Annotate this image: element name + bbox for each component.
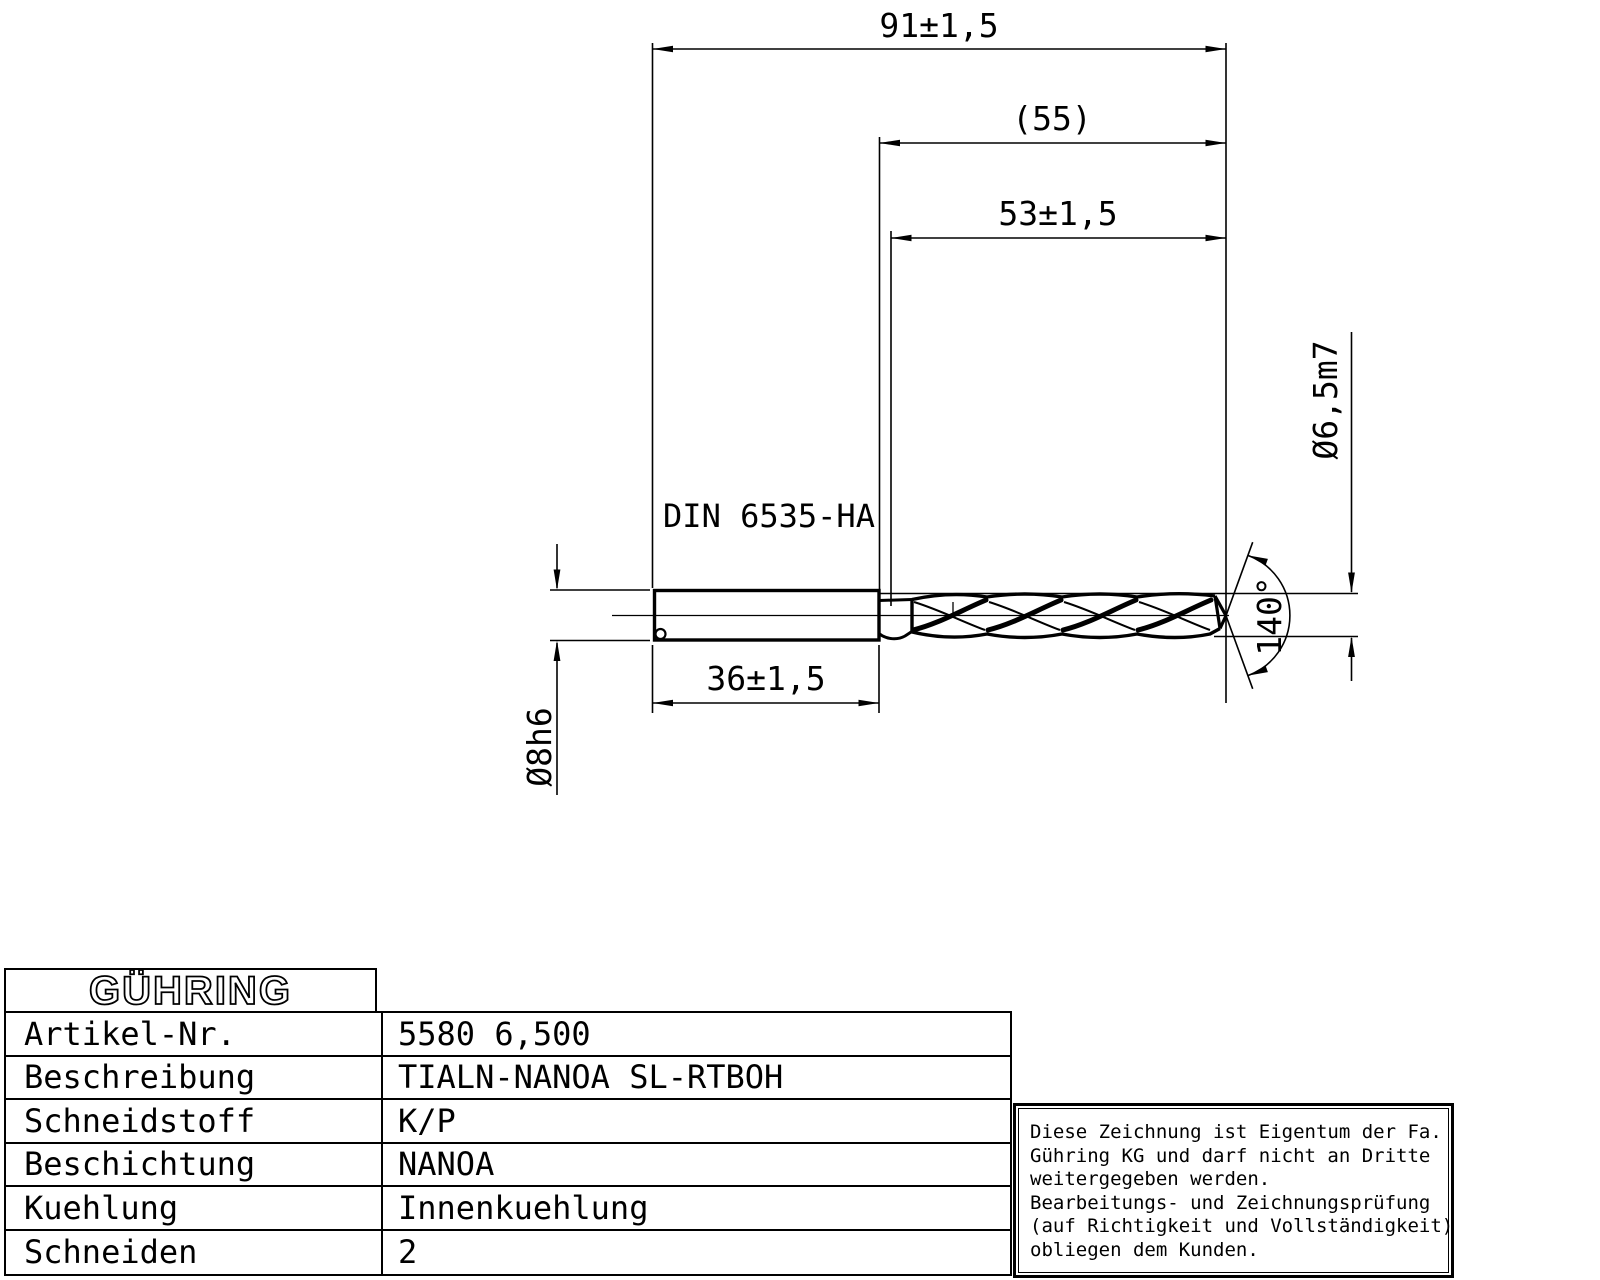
ownership-note: Diese Zeichnung ist Eigentum der Fa. Güh… — [1013, 1103, 1454, 1278]
note-line: obliegen dem Kunden. — [1030, 1239, 1448, 1263]
spec-table: Artikel-Nr. 5580 6,500 Beschreibung TIAL… — [4, 1011, 1012, 1276]
note-line: Bearbeitungs- und Zeichnungsprüfung — [1030, 1192, 1448, 1216]
spec-label-beschreibung: Beschreibung — [6, 1057, 383, 1101]
shank-din-label: DIN 6535-HA — [663, 497, 875, 535]
guehring-logo: GÜHRING — [89, 971, 292, 1011]
drill-tip — [1215, 596, 1226, 629]
dim-flute-length: 53±1,5 — [998, 194, 1117, 233]
angle-leg-top — [1226, 542, 1253, 616]
dim-drill-diameter: Ø6,5m7 — [1306, 340, 1345, 459]
logo-box: GÜHRING — [4, 968, 377, 1013]
flute-top-edge — [912, 594, 1215, 600]
dimension-arrows — [554, 46, 1355, 707]
spec-value-beschichtung: NANOA — [383, 1144, 1010, 1188]
ownership-note-inner: Diese Zeichnung ist Eigentum der Fa. Güh… — [1018, 1108, 1449, 1273]
angle-leg-bottom — [1226, 616, 1253, 689]
dim-point-angle: 140° — [1250, 576, 1289, 655]
spec-label-schneidstoff: Schneidstoff — [6, 1100, 383, 1144]
spec-label-artikel: Artikel-Nr. — [6, 1013, 383, 1057]
spec-label-beschichtung: Beschichtung — [6, 1144, 383, 1188]
spec-value-schneidstoff: K/P — [383, 1100, 1010, 1144]
dim-total-length: 91±1,5 — [879, 6, 998, 45]
note-line: Gühring KG und darf nicht an Dritte — [1030, 1145, 1448, 1169]
spec-label-schneiden: Schneiden — [6, 1231, 383, 1275]
spec-value-kuehlung: Innenkuehlung — [383, 1187, 1010, 1231]
note-line: (auf Richtigkeit und Vollständigkeit) — [1030, 1215, 1448, 1239]
drawing-sheet: 91±1,5 (55) 53±1,5 36±1,5 DIN 6535-HA Ø8… — [0, 0, 1600, 1280]
note-line: weitergegeben werden. — [1030, 1168, 1448, 1192]
dimension-lines — [550, 43, 1358, 795]
spec-value-schneiden: 2 — [383, 1231, 1010, 1275]
shank-corner-detail — [656, 629, 666, 639]
spec-label-kuehlung: Kuehlung — [6, 1187, 383, 1231]
drill-neck — [879, 632, 912, 639]
dim-flute-ref: (55) — [1012, 99, 1091, 138]
dim-shank-length: 36±1,5 — [706, 659, 825, 698]
note-line: Diese Zeichnung ist Eigentum der Fa. — [1030, 1121, 1448, 1145]
spec-value-beschreibung: TIALN-NANOA SL-RTBOH — [383, 1057, 1010, 1101]
dim-shank-diameter: Ø8h6 — [520, 707, 559, 786]
spec-value-artikel: 5580 6,500 — [383, 1013, 1010, 1057]
